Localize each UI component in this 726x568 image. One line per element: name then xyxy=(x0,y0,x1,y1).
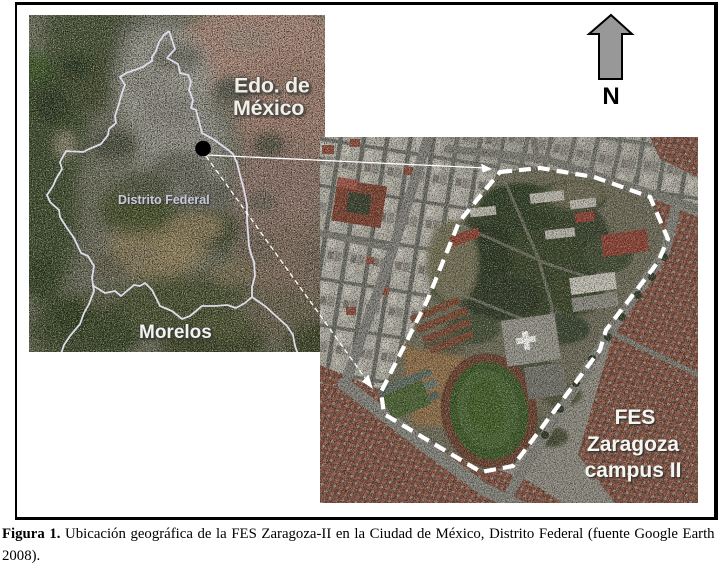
svg-text:campus II: campus II xyxy=(585,459,682,482)
svg-text:Distrito Federal: Distrito Federal xyxy=(118,193,210,207)
svg-text:N: N xyxy=(602,83,619,110)
svg-text:Zaragoza: Zaragoza xyxy=(587,433,680,456)
svg-text:Morelos: Morelos xyxy=(139,322,212,343)
svg-text:FES: FES xyxy=(615,406,656,429)
svg-text:Edo. de: Edo. de xyxy=(234,74,310,98)
svg-text:México: México xyxy=(233,96,304,120)
